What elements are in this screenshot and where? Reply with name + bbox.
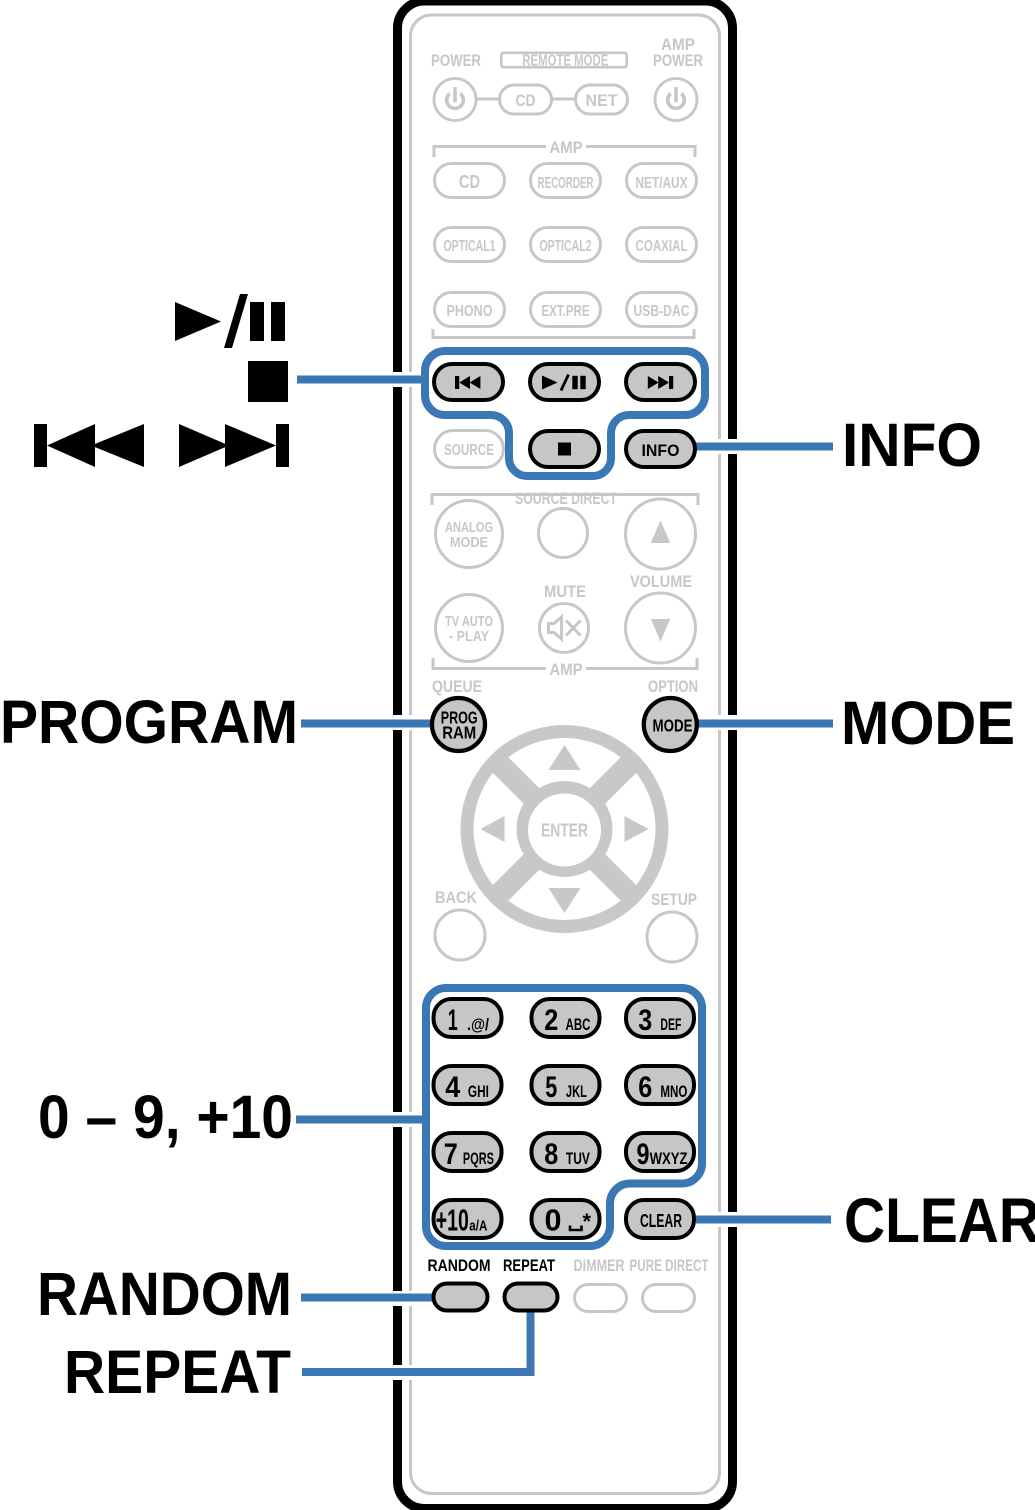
svg-text:*: *	[583, 1209, 592, 1234]
svg-text:SETUP: SETUP	[651, 890, 697, 909]
svg-text:POWER: POWER	[653, 51, 703, 70]
svg-text:RAM: RAM	[442, 723, 476, 743]
svg-text:a/A: a/A	[469, 1218, 487, 1235]
svg-text:INFO: INFO	[642, 441, 680, 460]
svg-text:6: 6	[638, 1071, 652, 1104]
svg-text:USB-DAC: USB-DAC	[634, 303, 690, 320]
svg-text:REPEAT: REPEAT	[503, 1256, 555, 1275]
svg-text:AMP: AMP	[550, 660, 583, 679]
svg-text:POWER: POWER	[431, 51, 481, 70]
svg-text:JKL: JKL	[566, 1082, 587, 1101]
svg-text:+10: +10	[436, 1203, 469, 1238]
svg-text:MODE: MODE	[653, 715, 693, 735]
svg-text:CD: CD	[459, 172, 480, 192]
svg-text:RECORDER: RECORDER	[538, 175, 594, 192]
svg-text:- PLAY: - PLAY	[449, 628, 489, 645]
svg-text:OPTICAL2: OPTICAL2	[540, 238, 592, 255]
svg-text:TUV: TUV	[566, 1149, 590, 1168]
svg-text:SOURCE DIRECT: SOURCE DIRECT	[515, 489, 617, 508]
svg-text:PURE DIRECT: PURE DIRECT	[630, 1256, 709, 1275]
svg-text:CLEAR: CLEAR	[844, 1186, 1035, 1256]
svg-text:REPEAT: REPEAT	[64, 1338, 291, 1406]
svg-text:COAXIAL: COAXIAL	[636, 238, 688, 255]
svg-text:VOLUME: VOLUME	[630, 572, 692, 591]
svg-text:NET/AUX: NET/AUX	[636, 175, 688, 192]
svg-text:WXYZ: WXYZ	[650, 1149, 688, 1168]
svg-text:8: 8	[544, 1138, 558, 1171]
svg-text:MNO: MNO	[660, 1082, 687, 1101]
svg-text:AMP: AMP	[550, 138, 583, 157]
svg-text:RANDOM: RANDOM	[37, 1260, 292, 1328]
svg-text:ENTER: ENTER	[541, 821, 588, 841]
svg-text:PROGRAM: PROGRAM	[0, 688, 298, 756]
svg-text:4: 4	[445, 1071, 460, 1104]
svg-text:5: 5	[545, 1071, 557, 1104]
svg-text:0 – 9, +10: 0 – 9, +10	[38, 1083, 293, 1151]
svg-text:CD: CD	[516, 91, 536, 110]
svg-text:INFO: INFO	[842, 411, 982, 479]
svg-text:ABC: ABC	[566, 1015, 591, 1034]
svg-text:3: 3	[638, 1004, 652, 1037]
svg-text:GHI: GHI	[468, 1082, 489, 1101]
svg-text:CLEAR: CLEAR	[640, 1211, 682, 1231]
svg-text:.@/: .@/	[467, 1015, 489, 1034]
svg-text:2: 2	[544, 1004, 558, 1037]
svg-text:QUEUE: QUEUE	[432, 677, 482, 696]
svg-text:7: 7	[444, 1138, 458, 1171]
svg-text:PQRS: PQRS	[463, 1149, 494, 1168]
svg-text:9: 9	[637, 1138, 650, 1171]
svg-text:EXT.PRE: EXT.PRE	[542, 303, 590, 320]
svg-text:MODE: MODE	[841, 689, 1015, 757]
svg-text:MUTE: MUTE	[544, 582, 586, 601]
svg-text:1: 1	[448, 1004, 458, 1037]
svg-text:DEF: DEF	[660, 1015, 681, 1034]
svg-text:REMOTE MODE: REMOTE MODE	[522, 52, 608, 69]
svg-text:MODE: MODE	[450, 534, 488, 551]
svg-text:0: 0	[545, 1203, 562, 1238]
svg-text:PHONO: PHONO	[447, 303, 493, 320]
svg-text:DIMMER: DIMMER	[574, 1256, 625, 1275]
svg-text:OPTICAL1: OPTICAL1	[444, 238, 496, 255]
svg-text:RANDOM: RANDOM	[428, 1256, 491, 1275]
svg-text:SOURCE: SOURCE	[444, 442, 494, 459]
svg-text:NET: NET	[586, 91, 619, 110]
svg-text:OPTION: OPTION	[648, 677, 698, 696]
svg-text:BACK: BACK	[435, 888, 478, 907]
